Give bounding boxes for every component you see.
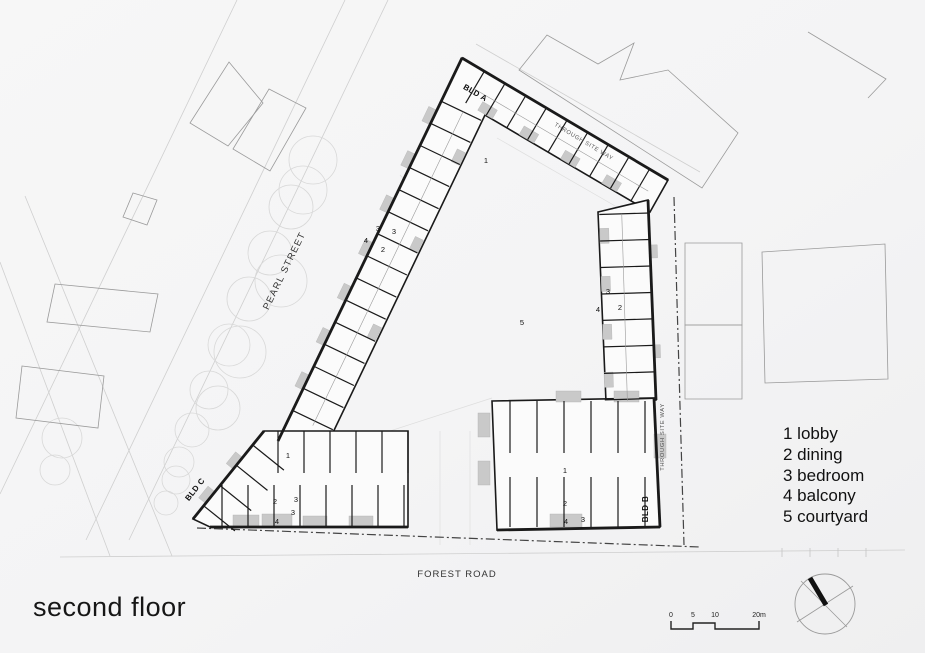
room-number-label: 1 bbox=[286, 451, 290, 460]
balcony-patch bbox=[233, 515, 259, 527]
legend-item-dining: 2 dining bbox=[783, 445, 868, 466]
balcony-patch bbox=[614, 391, 639, 402]
context-building-outline bbox=[233, 89, 306, 171]
room-number-label: 3 bbox=[606, 287, 610, 296]
map-label: FOREST ROAD bbox=[417, 569, 496, 580]
context-building-outline bbox=[16, 366, 104, 428]
tree-icon bbox=[269, 185, 313, 229]
balcony-patch bbox=[303, 516, 327, 527]
legend-item-lobby: 1 lobby bbox=[783, 424, 868, 445]
context-building-outline bbox=[685, 243, 742, 325]
north-arrow-compass bbox=[795, 574, 855, 634]
tree-icon bbox=[190, 371, 228, 409]
map-label: THROUGH SITE WAY bbox=[660, 403, 666, 471]
tree-icon bbox=[208, 324, 250, 366]
page-title: second floor bbox=[33, 592, 186, 623]
main-building-layer bbox=[193, 58, 668, 530]
context-building-outline bbox=[123, 193, 157, 225]
tree-icon bbox=[175, 413, 209, 447]
balcony-patch bbox=[603, 324, 612, 339]
scale-bar-tick-label: 10 bbox=[711, 612, 719, 619]
floor-plan-sheet: 111222233333344445PEARL STREETFOREST ROA… bbox=[0, 0, 925, 653]
room-number-label: 2 bbox=[273, 497, 277, 506]
scale-bar-tick-label: 0 bbox=[669, 612, 673, 619]
tree-icon bbox=[40, 455, 70, 485]
room-legend: 1 lobby 2 dining 3 bedroom 4 balcony 5 c… bbox=[783, 424, 868, 528]
tree-icon bbox=[154, 491, 178, 515]
context-building-outline bbox=[808, 32, 886, 98]
context-building-outline bbox=[762, 244, 888, 383]
tree-icon bbox=[279, 166, 327, 214]
room-number-label: 2 bbox=[618, 303, 622, 312]
tree-icon bbox=[289, 136, 337, 184]
site-plan-svg: 111222233333344445PEARL STREETFOREST ROA… bbox=[0, 0, 925, 653]
balcony-patch bbox=[604, 372, 614, 387]
map-label: PEARL STREET bbox=[261, 230, 308, 312]
room-number-label: 4 bbox=[275, 517, 279, 526]
room-number-label: 1 bbox=[484, 156, 488, 165]
room-number-label: 4 bbox=[364, 236, 368, 245]
parking-ticks-layer bbox=[782, 548, 866, 557]
corridor-line bbox=[313, 112, 463, 426]
balcony-patch bbox=[478, 413, 490, 437]
room-number-label: 3 bbox=[291, 508, 295, 517]
north-arrow-icon bbox=[810, 578, 826, 605]
tree-icon bbox=[164, 447, 194, 477]
balcony-patch bbox=[478, 461, 490, 485]
room-number-label: 1 bbox=[563, 466, 567, 475]
scale-bar: 051020m bbox=[669, 612, 766, 629]
legend-item-balcony: 4 balcony bbox=[783, 486, 868, 507]
room-number-label: 2 bbox=[381, 245, 385, 254]
tree-icon bbox=[162, 466, 190, 494]
legend-item-bedroom: 3 bedroom bbox=[783, 466, 868, 487]
scale-bar-line bbox=[671, 621, 759, 629]
room-number-label: 3 bbox=[376, 224, 380, 233]
legend-item-courtyard: 5 courtyard bbox=[783, 507, 868, 528]
room-number-label: 4 bbox=[596, 305, 600, 314]
room-number-label: 3 bbox=[294, 495, 298, 504]
building-footprint-bld-b bbox=[492, 398, 660, 530]
balcony-patch bbox=[556, 391, 581, 402]
room-number-label: 3 bbox=[392, 227, 396, 236]
room-number-label: 5 bbox=[520, 318, 524, 327]
tree-icon bbox=[214, 326, 266, 378]
context-building-outline bbox=[685, 325, 742, 399]
room-number-label: 2 bbox=[563, 499, 567, 508]
room-number-label: 3 bbox=[581, 515, 585, 524]
scale-bar-tick-label: 5 bbox=[691, 612, 695, 619]
scale-bar-tick-label: 20m bbox=[752, 612, 766, 619]
map-label: BLD B bbox=[641, 496, 650, 522]
room-number-label: 4 bbox=[564, 517, 568, 526]
